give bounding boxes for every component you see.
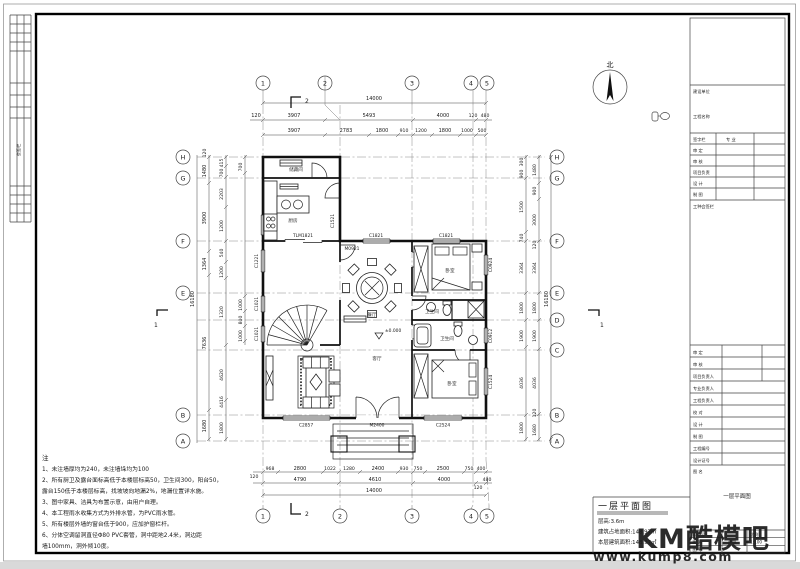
level-marker: ±0.000 xyxy=(375,328,401,339)
note-line: 墙100mm，洞外倾10度。 xyxy=(42,542,112,550)
bedroom1-furniture xyxy=(414,244,482,292)
north-arrow: 北 xyxy=(593,61,627,104)
note-line: 6、分体空调留洞直径Φ80 PVC套管，洞中距地2.4米，洞边距 xyxy=(42,531,202,539)
living-room-set xyxy=(266,356,340,408)
dim: 3907 xyxy=(288,128,301,134)
note-line: 2、所有厨卫及露台面标高低于本楼层标高50，卫生间300，阳台50， xyxy=(42,476,222,484)
room-label: 储藏间 xyxy=(289,166,303,173)
dim: 1500 xyxy=(519,201,525,213)
dim: 1480 xyxy=(202,165,208,178)
dim: 1800 xyxy=(532,302,538,314)
dim: 1800 xyxy=(519,422,525,434)
binding-strip-label: 会签栏 xyxy=(15,144,22,157)
note-line: 5、所有楼层外墙的窗台低于900，应加护窗栏杆。 xyxy=(42,520,173,528)
dim: 4036 xyxy=(519,377,525,389)
dim: 900 xyxy=(532,187,538,196)
dim: 750 xyxy=(414,466,423,472)
door-tag: M2400 xyxy=(370,423,385,429)
dim: 1200 xyxy=(219,266,225,278)
binding-strip: 会签栏 xyxy=(10,15,31,222)
dim: 120 xyxy=(202,149,208,158)
section-label: 2 xyxy=(305,98,309,105)
dim: 1000 xyxy=(238,299,244,311)
spiral-staircase xyxy=(267,305,327,351)
dim: 4620 xyxy=(219,369,225,381)
general-notes: 注 1、未注墙厚均为240，未注墙垛均为100 2、所有厨卫及露台面标高低于本楼… xyxy=(42,453,222,550)
dim: 14000 xyxy=(366,96,382,102)
dim: 1800 xyxy=(376,128,389,134)
window-tag: C2857 xyxy=(299,423,313,429)
dim: 1000 xyxy=(461,128,473,134)
dimensions-left: 120 1480 3900 1364 7636 1680 16180 415 7… xyxy=(190,149,244,434)
tb-sign-row: 设 计 xyxy=(693,180,703,187)
axis-label: F xyxy=(181,238,185,246)
window-tag: C1524 xyxy=(488,375,494,389)
dim: 3364 xyxy=(519,262,525,274)
axis-label: 2 xyxy=(338,513,342,521)
axis-label: G xyxy=(554,175,559,183)
dim: 300 xyxy=(519,158,525,167)
dim: 120 xyxy=(469,113,478,119)
door-tag: TLM1821 xyxy=(292,233,313,239)
axis-label: H xyxy=(181,154,186,162)
note-line: 露台150低于本楼层标高，找坡坡向地漏2%，地漏位置详水施。 xyxy=(42,487,207,495)
notes-title: 注 xyxy=(42,453,49,462)
dim: 2500 xyxy=(437,466,450,472)
dim: 1280 xyxy=(343,466,355,472)
dim: 7636 xyxy=(202,337,208,350)
stamp-mark xyxy=(652,112,670,121)
tb-sign-row: 审 核 xyxy=(693,158,704,165)
window-tag: C1821 xyxy=(439,233,453,239)
dining-table xyxy=(343,259,402,318)
axis-label: A xyxy=(181,438,186,446)
dim: 1364 xyxy=(202,258,208,271)
dim: 5493 xyxy=(363,113,376,119)
dim: 1800 xyxy=(219,422,225,434)
furniture xyxy=(264,160,484,459)
room-label: 客厅 xyxy=(372,355,382,362)
dim: 1900 xyxy=(519,330,525,342)
tb-row: 设计证号 xyxy=(693,457,710,464)
floor-plan-canvas: 会签栏 14000 120 3907 5493 4000 120 480 390… xyxy=(0,0,800,569)
axis-label: F xyxy=(555,238,559,246)
dim: 750 xyxy=(465,466,474,472)
dim: 1000 xyxy=(238,330,244,342)
note-line: 1、未注墙厚均为240，未注墙垛均为100 xyxy=(42,465,149,473)
window-tag: C1021 xyxy=(254,297,260,311)
window-tag: C0924 xyxy=(488,258,494,272)
kitchen-counter xyxy=(264,181,309,240)
dim: 968 xyxy=(266,466,275,472)
dim: 3364 xyxy=(532,262,538,274)
dim: 1680 xyxy=(202,420,208,433)
tb-owner-label: 建设单位 xyxy=(693,88,710,95)
dim: 4416 xyxy=(219,396,225,408)
dim: 2203 xyxy=(219,188,225,200)
axis-label: E xyxy=(181,290,185,298)
drawing-sheet: 会签栏 14000 120 3907 5493 4000 120 480 390… xyxy=(0,0,800,569)
axis-label: 1 xyxy=(261,80,265,88)
dim: 3907 xyxy=(288,113,301,119)
section-label: 2 xyxy=(305,511,309,518)
axis-label: A xyxy=(555,438,560,446)
axis-label: 1 xyxy=(261,513,265,521)
dimensions-bottom: 120 968 2800 1022 1280 2400 930 750 2500… xyxy=(250,466,492,494)
axis-label: 4 xyxy=(469,513,473,521)
dim: 1480 xyxy=(532,164,538,176)
dim: 1022 xyxy=(324,466,336,472)
axis-label: H xyxy=(555,154,560,162)
tb-row: 审 定 xyxy=(693,349,703,356)
dim: 120 xyxy=(532,241,538,250)
dim: 1320 xyxy=(219,306,225,318)
axis-label: E xyxy=(555,290,559,298)
dim: 500 xyxy=(478,128,487,134)
dim: 930 xyxy=(400,466,409,472)
dim: 800 xyxy=(238,316,244,325)
dim: 2400 xyxy=(372,466,385,472)
tb-sign-header: 签字栏 xyxy=(693,136,706,143)
tb-row: 审 核 xyxy=(693,361,704,368)
room-label: 卧室 xyxy=(445,267,455,274)
watermark-url: www.kump8.com xyxy=(593,549,733,564)
dim: 2783 xyxy=(340,128,353,134)
axis-label: 3 xyxy=(410,80,414,88)
dim: 14000 xyxy=(366,488,382,494)
tb-row: 制 图 xyxy=(693,433,703,440)
dim: 1200 xyxy=(415,128,427,134)
dim: 540 xyxy=(219,249,225,258)
tb-row: 工程负责人 xyxy=(693,397,715,404)
window-tag: C1821 xyxy=(369,233,383,239)
dim: 480 xyxy=(483,477,492,483)
dim: 4036 xyxy=(532,377,538,389)
axis-label: C xyxy=(555,347,560,355)
tb-row: 设 计 xyxy=(693,421,703,428)
dim: 2800 xyxy=(294,466,307,472)
dim: 120 xyxy=(250,474,259,480)
tb-sign-row: 项目负责 xyxy=(693,169,710,176)
axis-label: 4 xyxy=(469,80,473,88)
drawing-title: 一层平面图 xyxy=(598,501,653,512)
dimensions-right: 300 900 1500 740 3364 1800 1900 4036 180… xyxy=(519,158,550,436)
tb-sign-header: 专 业 xyxy=(726,136,736,143)
axis-label: 3 xyxy=(410,513,414,521)
tb-row: 校 对 xyxy=(693,409,703,416)
dim: 120 xyxy=(532,409,538,418)
axis-label: 5 xyxy=(485,513,489,521)
tb-seal-label: 工种会签栏 xyxy=(693,203,714,210)
dim: 3000 xyxy=(532,214,538,226)
tb-name-label: 图 名 xyxy=(693,468,703,475)
dim: 700 xyxy=(238,163,244,172)
dim: 1680 xyxy=(532,424,538,436)
window-tag: C0912 xyxy=(488,329,494,343)
dim: 700 xyxy=(219,169,225,178)
dim: 1200 xyxy=(219,220,225,232)
dim: 4000 xyxy=(438,477,451,483)
dim: 910 xyxy=(400,128,409,134)
window-tag: C1021 xyxy=(254,327,260,341)
dim: 740 xyxy=(519,234,525,243)
dim: 1800 xyxy=(439,128,452,134)
tb-row: 工程编号 xyxy=(693,445,710,452)
axis-label: D xyxy=(554,317,559,325)
dim: 3900 xyxy=(202,212,208,225)
section-label: 1 xyxy=(600,322,604,329)
drawing-info: 层高:3.6m xyxy=(598,517,624,525)
dimensions-top: 14000 120 3907 5493 4000 120 480 3907 27… xyxy=(251,96,489,134)
tb-sign-row: 审 定 xyxy=(693,147,703,154)
tb-row: 专业负责人 xyxy=(693,385,715,392)
dim: 400 xyxy=(477,466,486,472)
dim: 4790 xyxy=(294,477,307,483)
axis-label: G xyxy=(180,175,185,183)
dim: 4000 xyxy=(437,113,450,119)
window-tag: C2524 xyxy=(436,423,450,429)
dim: 415 xyxy=(219,159,225,168)
room-label: 卫生间 xyxy=(440,335,454,342)
note-line: 4、本工程雨水收集方式为外排水管，为PVC雨水管。 xyxy=(42,509,179,517)
dim: 120 xyxy=(251,113,261,119)
bedroom2-furniture xyxy=(414,354,478,398)
title-block: 建设单位 工程名称 签字栏 专 业 审 定 审 核 项目负责 设 计 制 图 工… xyxy=(690,18,785,553)
axis-label: B xyxy=(555,412,559,420)
tb-row: 项目负责人 xyxy=(693,373,715,380)
dim: 1800 xyxy=(519,302,525,314)
door-tag: M0921 xyxy=(345,246,360,252)
level-value: ±0.000 xyxy=(385,328,401,334)
room-label: 厨房 xyxy=(288,217,298,224)
dim: 480 xyxy=(481,113,490,119)
room-label: 卧室 xyxy=(447,380,457,387)
dim: 16180 xyxy=(544,291,550,307)
entry-steps xyxy=(331,424,415,459)
window-tag: C1221 xyxy=(254,254,260,268)
tb-project-label: 工程名称 xyxy=(693,113,710,120)
axis-label: 5 xyxy=(485,80,489,88)
room-label: 卫生间 xyxy=(425,308,439,315)
window-tag: C1521 xyxy=(330,214,336,228)
tb-sign-row: 制 图 xyxy=(693,191,703,198)
room-label: 餐厅 xyxy=(367,311,377,318)
dim: 1900 xyxy=(532,330,538,342)
axis-label: B xyxy=(181,412,185,420)
north-label: 北 xyxy=(607,61,614,69)
dim: 900 xyxy=(519,170,525,179)
tb-name-value: 一层平面图 xyxy=(723,492,751,500)
section-label: 1 xyxy=(154,322,158,329)
dim: 16180 xyxy=(190,291,196,307)
axis-label: 2 xyxy=(323,80,327,88)
dim: 4610 xyxy=(369,477,382,483)
note-line: 3、图中家具、洁具为布置示意，由用户自理。 xyxy=(42,498,162,506)
dim: 120 xyxy=(474,485,483,491)
